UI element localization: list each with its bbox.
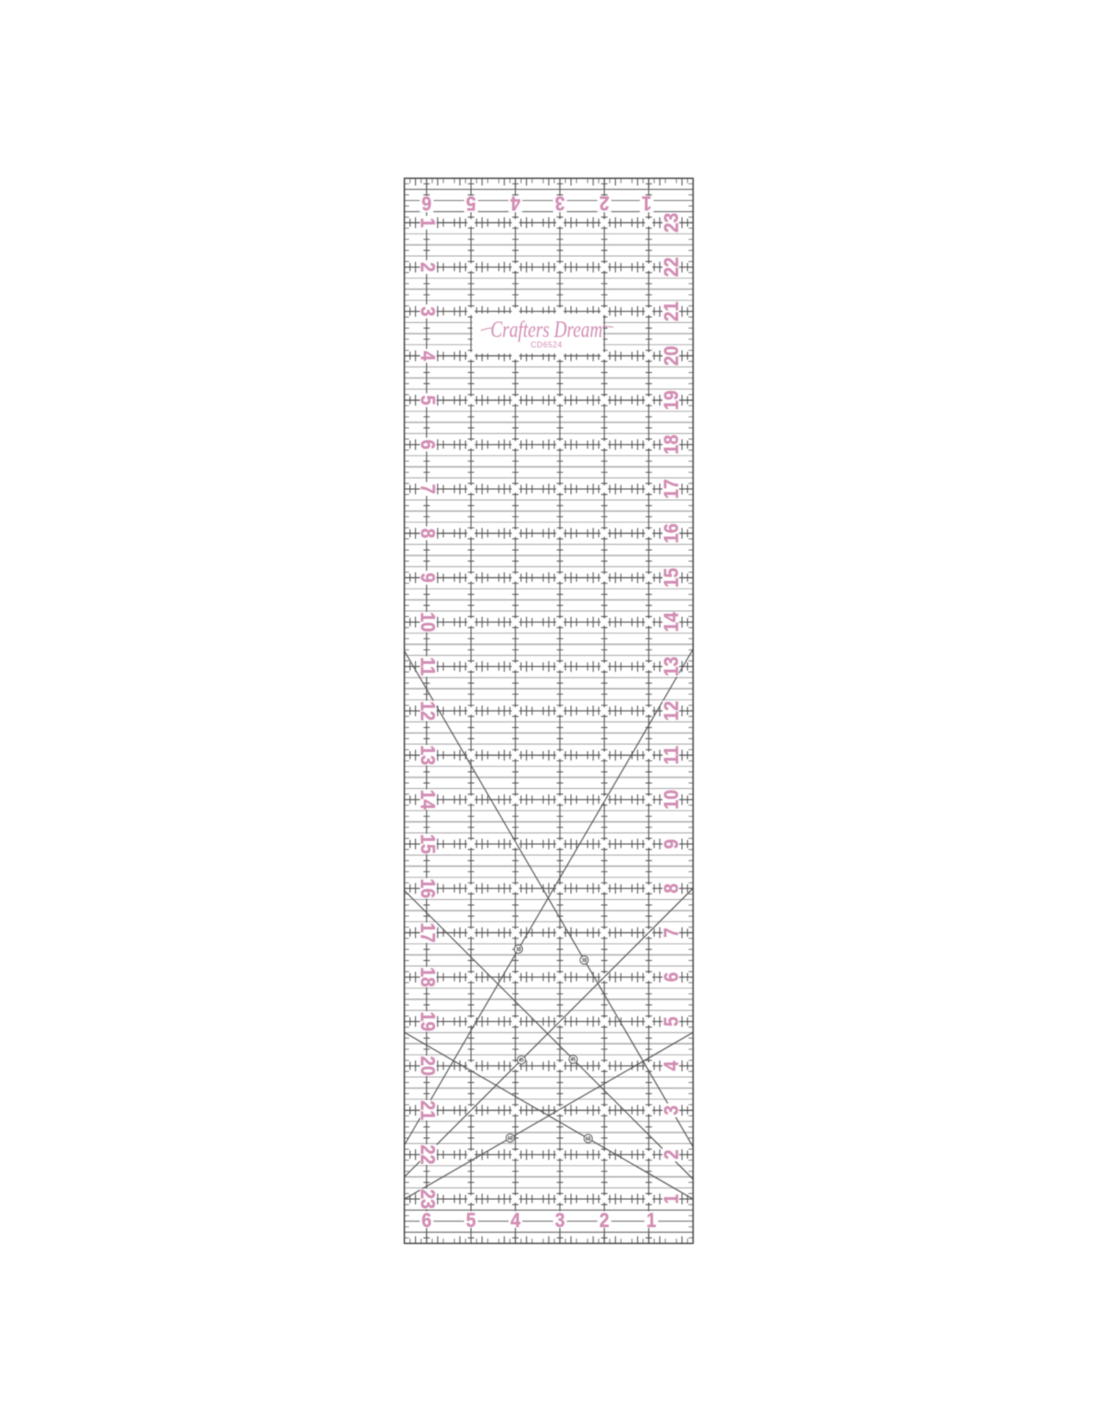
svg-text:3: 3 <box>555 1210 565 1232</box>
svg-text:4: 4 <box>416 351 438 361</box>
svg-text:19: 19 <box>661 390 683 410</box>
svg-text:15: 15 <box>416 834 438 854</box>
svg-text:18: 18 <box>661 434 683 454</box>
svg-text:4: 4 <box>661 1061 683 1071</box>
svg-text:16: 16 <box>661 523 683 543</box>
svg-text:1: 1 <box>416 218 438 228</box>
svg-text:20: 20 <box>661 346 683 366</box>
svg-text:14: 14 <box>661 612 683 632</box>
svg-text:9: 9 <box>416 573 438 583</box>
svg-text:CD6524: CD6524 <box>531 340 563 349</box>
svg-text:2: 2 <box>599 191 609 213</box>
svg-text:5: 5 <box>416 395 438 405</box>
svg-text:6: 6 <box>422 191 432 213</box>
svg-text:11: 11 <box>416 657 438 676</box>
svg-text:2: 2 <box>661 1150 683 1160</box>
svg-text:6: 6 <box>661 972 683 982</box>
svg-text:1: 1 <box>646 1210 656 1232</box>
svg-text:5: 5 <box>661 1016 683 1026</box>
svg-text:8: 8 <box>416 528 438 538</box>
svg-text:2: 2 <box>599 1210 609 1232</box>
svg-text:6: 6 <box>422 1210 432 1232</box>
svg-text:13: 13 <box>416 745 438 765</box>
svg-text:5: 5 <box>466 1210 476 1232</box>
svg-text:8: 8 <box>661 883 683 893</box>
svg-text:5: 5 <box>466 191 476 213</box>
svg-text:3: 3 <box>661 1105 683 1115</box>
svg-text:10: 10 <box>416 612 438 632</box>
svg-text:18: 18 <box>416 967 438 987</box>
svg-text:10: 10 <box>661 790 683 810</box>
svg-text:17: 17 <box>661 479 683 499</box>
svg-text:7: 7 <box>661 928 683 938</box>
svg-text:23: 23 <box>661 213 683 233</box>
svg-text:22: 22 <box>661 257 683 277</box>
svg-text:19: 19 <box>416 1012 438 1032</box>
svg-text:21: 21 <box>661 301 683 321</box>
svg-text:23: 23 <box>416 1189 438 1209</box>
svg-text:4: 4 <box>510 191 520 213</box>
svg-text:16: 16 <box>416 878 438 898</box>
svg-text:4: 4 <box>510 1210 520 1232</box>
svg-text:12: 12 <box>416 701 438 721</box>
svg-text:11: 11 <box>661 745 683 764</box>
svg-text:2: 2 <box>416 262 438 272</box>
svg-text:3: 3 <box>555 191 565 213</box>
svg-text:12: 12 <box>661 701 683 721</box>
svg-text:14: 14 <box>416 790 438 810</box>
svg-text:6: 6 <box>416 440 438 450</box>
svg-text:22: 22 <box>416 1145 438 1165</box>
svg-text:15: 15 <box>661 567 683 587</box>
svg-text:20: 20 <box>416 1056 438 1076</box>
svg-text:17: 17 <box>416 923 438 943</box>
svg-text:1: 1 <box>661 1194 683 1204</box>
svg-text:Crafters Dream: Crafters Dream <box>491 317 603 343</box>
svg-text:9: 9 <box>661 839 683 849</box>
svg-text:21: 21 <box>416 1100 438 1120</box>
svg-text:7: 7 <box>416 484 438 494</box>
svg-text:13: 13 <box>661 657 683 677</box>
svg-text:1: 1 <box>641 191 651 213</box>
svg-text:3: 3 <box>416 306 438 316</box>
